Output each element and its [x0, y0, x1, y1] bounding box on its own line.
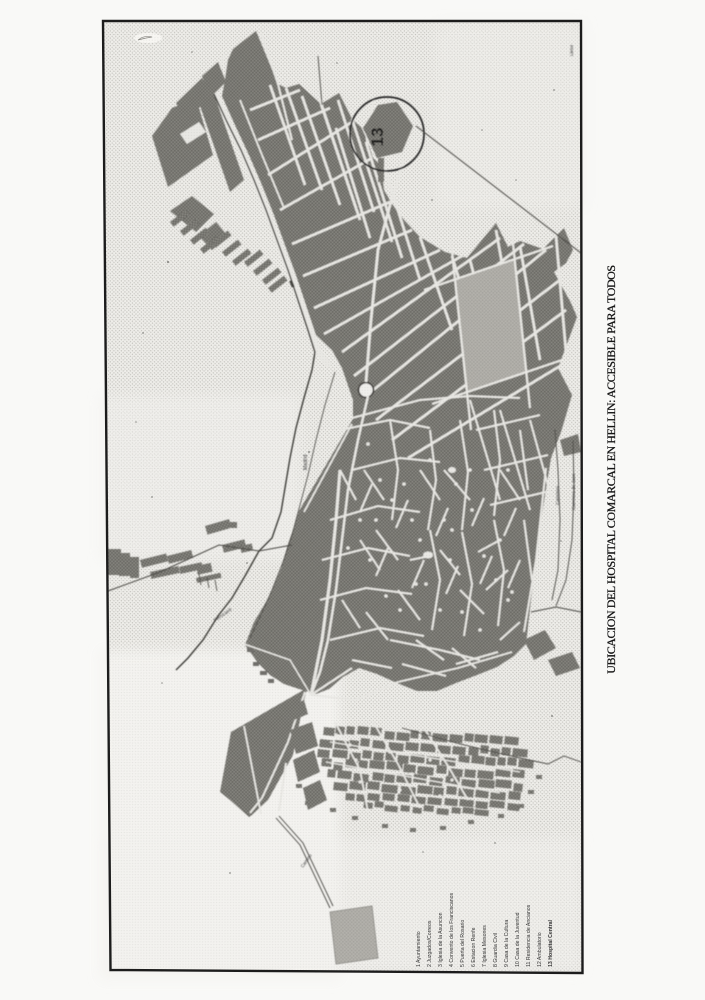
svg-text:9 Casa de la Cultura: 9 Casa de la Cultura [504, 920, 510, 967]
svg-text:UBICACION DEL HOSPITAL COMARCA: UBICACION DEL HOSPITAL COMARCAL EN HELLI… [604, 265, 618, 673]
svg-text:2 Juzgados/Correos: 2 Juzgados/Correos [427, 920, 433, 967]
svg-text:10 Casa de la Juventud: 10 Casa de la Juventud [515, 912, 521, 967]
svg-text:13 Hospital Central: 13 Hospital Central [548, 919, 554, 967]
svg-text:1 Ayuntamiento: 1 Ayuntamiento [416, 931, 422, 967]
svg-text:8 Guardia Civil: 8 Guardia Civil [493, 933, 499, 967]
svg-text:5 Puerta del Rosario: 5 Puerta del Rosario [460, 920, 466, 967]
svg-text:3 Iglesia de la Asuncion: 3 Iglesia de la Asuncion [438, 912, 444, 967]
svg-text:6 Estacion Renfe: 6 Estacion Renfe [471, 927, 477, 967]
svg-text:7 Iglesia Mesones: 7 Iglesia Mesones [482, 925, 488, 967]
svg-text:11 Residencia de Ancianos: 11 Residencia de Ancianos [526, 904, 532, 967]
svg-text:12 Ambulatorio: 12 Ambulatorio [537, 932, 543, 967]
svg-text:4 Convento de los Franciscan: 4 Convento de los Franciscanos [449, 892, 455, 967]
